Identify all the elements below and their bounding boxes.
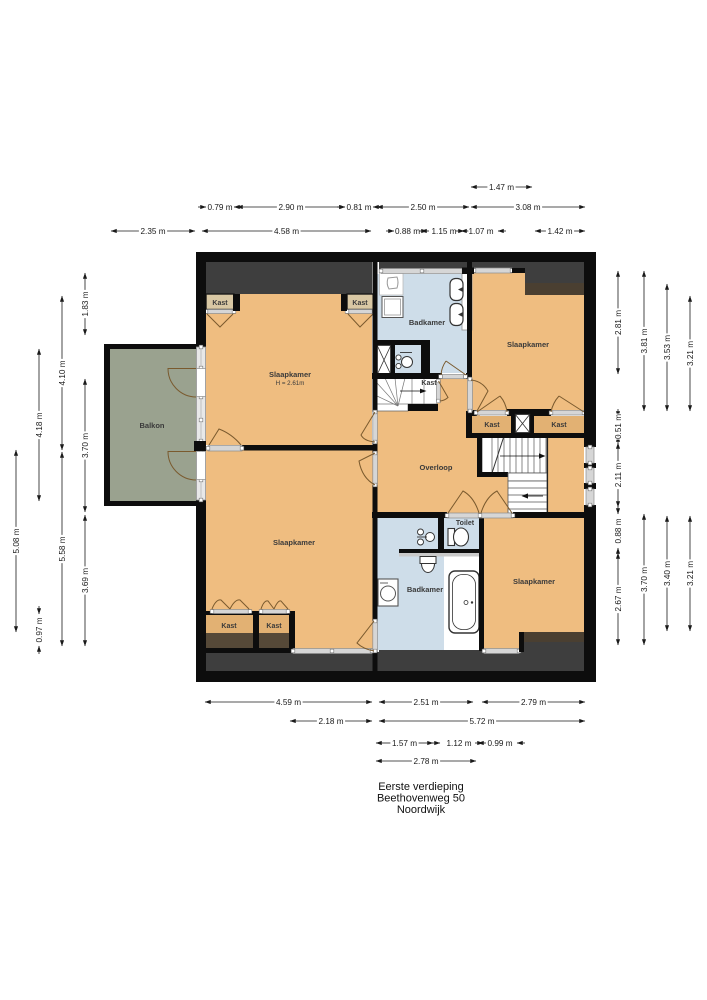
svg-text:2.50 m: 2.50 m [410,203,435,212]
svg-text:4.59 m: 4.59 m [276,698,301,707]
svg-text:3.69 m: 3.69 m [81,568,90,593]
svg-text:Slaapkamer: Slaapkamer [513,577,555,586]
svg-text:2.35 m: 2.35 m [140,227,165,236]
svg-text:Slaapkamer: Slaapkamer [269,370,311,379]
svg-text:Badkamer: Badkamer [407,585,443,594]
svg-text:Kast: Kast [266,623,282,630]
svg-text:Kast: Kast [212,300,228,307]
svg-text:1.12 m: 1.12 m [446,739,471,748]
svg-text:3.70 m: 3.70 m [81,433,90,458]
svg-text:H = 2.61m: H = 2.61m [276,380,305,387]
svg-text:2.18 m: 2.18 m [318,717,343,726]
svg-text:0.81 m: 0.81 m [346,203,371,212]
svg-text:Noordwijk: Noordwijk [397,804,446,816]
svg-text:3.21 m: 3.21 m [686,561,695,586]
svg-text:2.79 m: 2.79 m [521,698,546,707]
svg-text:3.40 m: 3.40 m [663,561,672,586]
svg-text:Kast: Kast [484,422,500,429]
svg-text:Eerste verdieping: Eerste verdieping [378,781,464,793]
svg-text:0.88 m: 0.88 m [614,518,623,543]
svg-text:3.70 m: 3.70 m [640,567,649,592]
svg-text:Balkon: Balkon [139,421,164,430]
svg-text:0.88 m: 0.88 m [395,227,420,236]
svg-text:2.90 m: 2.90 m [278,203,303,212]
svg-text:Kast: Kast [551,422,567,429]
svg-text:Toilet: Toilet [456,520,475,527]
svg-text:1.57 m: 1.57 m [392,739,417,748]
svg-text:2.81 m: 2.81 m [614,310,623,335]
svg-text:Beethovenweg 50: Beethovenweg 50 [377,793,465,805]
svg-text:0.51 m: 0.51 m [614,414,623,439]
svg-text:0.79 m: 0.79 m [207,203,232,212]
svg-text:Kast: Kast [221,623,237,630]
svg-text:5.08 m: 5.08 m [12,528,21,553]
svg-text:5.72 m: 5.72 m [469,717,494,726]
svg-text:4.18 m: 4.18 m [35,412,44,437]
svg-text:3.53 m: 3.53 m [663,335,672,360]
svg-text:5.58 m: 5.58 m [58,536,67,561]
svg-text:Slaapkamer: Slaapkamer [273,538,315,547]
svg-text:1.47 m: 1.47 m [489,183,514,192]
svg-text:Overloop: Overloop [420,463,453,472]
svg-text:0.99 m: 0.99 m [487,739,512,748]
svg-text:3.08 m: 3.08 m [515,203,540,212]
svg-text:0.97 m: 0.97 m [35,617,44,642]
svg-text:2.78 m: 2.78 m [413,757,438,766]
svg-text:3.81 m: 3.81 m [640,328,649,353]
svg-text:1.83 m: 1.83 m [81,291,90,316]
svg-text:Slaapkamer: Slaapkamer [507,340,549,349]
svg-text:Badkamer: Badkamer [409,318,445,327]
svg-text:3.21 m: 3.21 m [686,341,695,366]
svg-text:1.15 m: 1.15 m [431,227,456,236]
svg-text:Kast: Kast [352,300,368,307]
svg-text:2.11 m: 2.11 m [614,463,623,488]
svg-text:2.51 m: 2.51 m [413,698,438,707]
svg-text:Kast: Kast [421,380,437,387]
svg-text:4.58 m: 4.58 m [274,227,299,236]
svg-text:1.42 m: 1.42 m [547,227,572,236]
svg-text:4.10 m: 4.10 m [58,360,67,385]
svg-text:1.07 m: 1.07 m [468,227,493,236]
svg-text:2.67 m: 2.67 m [614,586,623,611]
